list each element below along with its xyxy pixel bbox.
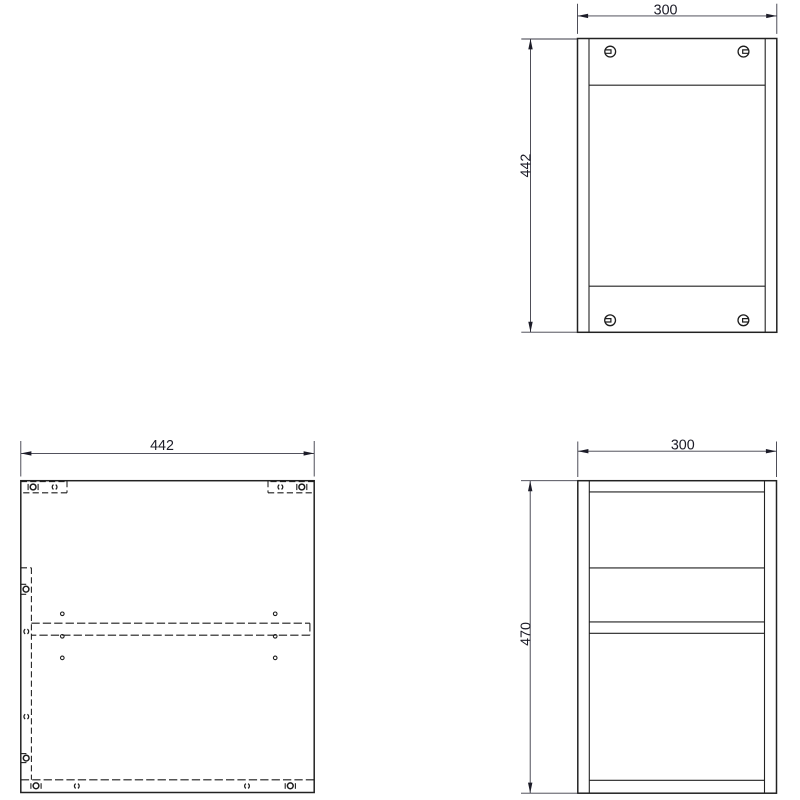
svg-text:300: 300 xyxy=(654,2,678,18)
svg-text:442: 442 xyxy=(518,154,534,178)
svg-text:442: 442 xyxy=(150,438,174,454)
svg-text:470: 470 xyxy=(518,622,534,646)
svg-text:300: 300 xyxy=(671,438,695,454)
